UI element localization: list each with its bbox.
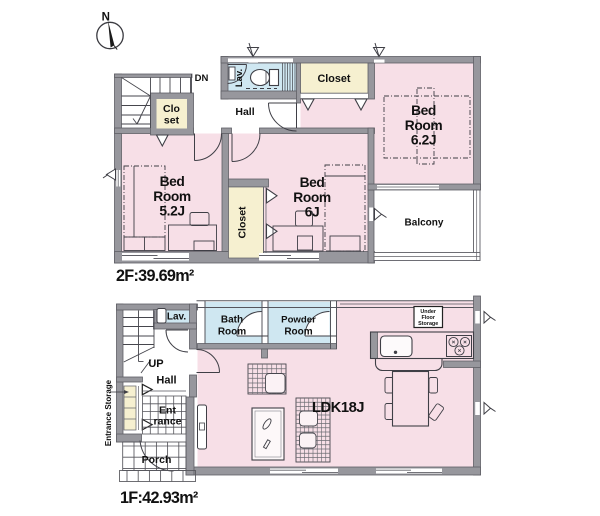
svg-text:LDK18J: LDK18J	[312, 400, 364, 416]
svg-text:1F:42.93m²: 1F:42.93m²	[120, 489, 199, 507]
svg-text:UP: UP	[148, 358, 163, 370]
svg-text:Hall: Hall	[235, 106, 254, 118]
svg-text:set: set	[164, 115, 180, 127]
svg-text:Bed: Bed	[300, 175, 325, 190]
svg-text:2F:39.69m²: 2F:39.69m²	[116, 267, 195, 285]
svg-text:Room: Room	[284, 327, 312, 338]
svg-text:Lav.: Lav.	[167, 312, 186, 323]
svg-text:Clo: Clo	[163, 103, 180, 115]
svg-text:Closet: Closet	[237, 206, 249, 239]
svg-text:Hall: Hall	[156, 375, 176, 387]
svg-text:Bath: Bath	[221, 315, 243, 326]
svg-text:Bed: Bed	[411, 103, 436, 118]
svg-text:Room: Room	[293, 190, 331, 205]
svg-text:5.2J: 5.2J	[159, 204, 184, 219]
svg-text:Closet: Closet	[318, 73, 351, 85]
svg-text:Room: Room	[218, 327, 246, 338]
svg-text:Bed: Bed	[160, 174, 185, 189]
svg-text:Porch: Porch	[142, 454, 172, 466]
svg-text:DN: DN	[195, 73, 209, 84]
svg-text:rance: rance	[153, 416, 181, 428]
svg-text:6.2J: 6.2J	[411, 133, 436, 148]
svg-text:Room: Room	[153, 189, 191, 204]
svg-text:Powder: Powder	[281, 315, 316, 326]
svg-text:Entrance Storage: Entrance Storage	[104, 379, 113, 446]
svg-text:Lav.: Lav.	[234, 69, 245, 87]
svg-text:6J: 6J	[305, 205, 320, 220]
svg-text:N: N	[102, 12, 110, 24]
svg-text:Room: Room	[405, 118, 443, 133]
svg-text:Balcony: Balcony	[405, 218, 444, 229]
svg-text:Storage: Storage	[418, 321, 438, 327]
